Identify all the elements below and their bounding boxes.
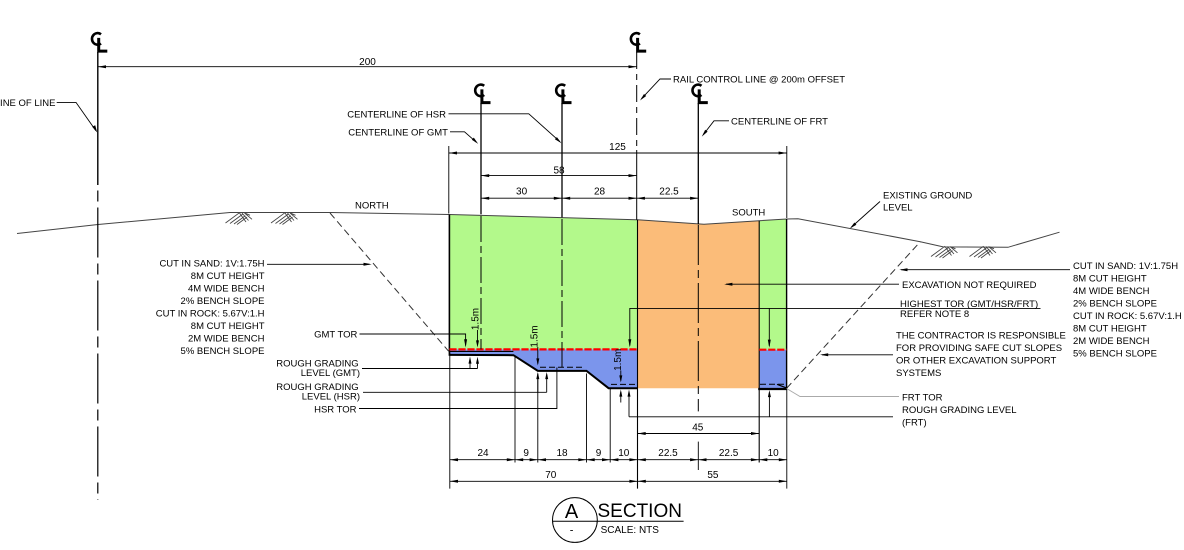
svg-text:LEVEL (GMT): LEVEL (GMT): [301, 368, 360, 379]
svg-text:70: 70: [545, 470, 557, 481]
svg-text:CUT IN SAND: 1V:1.75H: CUT IN SAND: 1V:1.75H: [1073, 261, 1178, 272]
svg-text:8M CUT HEIGHT: 8M CUT HEIGHT: [191, 321, 265, 332]
svg-text:HSR TOR: HSR TOR: [314, 405, 357, 416]
svg-text:30: 30: [516, 187, 528, 198]
svg-text:8M CUT HEIGHT: 8M CUT HEIGHT: [1073, 274, 1147, 285]
svg-text:9: 9: [523, 448, 529, 459]
svg-text:24: 24: [477, 448, 489, 459]
svg-text:RAIL CONTROL LINE @ 200m OFFSE: RAIL CONTROL LINE @ 200m OFFSET: [673, 75, 845, 86]
svg-text:22.5: 22.5: [658, 448, 678, 459]
svg-text:CENTERLINE OF HSR: CENTERLINE OF HSR: [347, 110, 446, 121]
svg-text:18: 18: [556, 448, 568, 459]
svg-text:SOUTH: SOUTH: [732, 208, 765, 219]
svg-text:CENTERLINE OF LINE: CENTERLINE OF LINE: [0, 98, 56, 109]
svg-text:5% BENCH SLOPE: 5% BENCH SLOPE: [181, 346, 265, 357]
svg-text:22.5: 22.5: [719, 448, 739, 459]
svg-text:5% BENCH SLOPE: 5% BENCH SLOPE: [1073, 349, 1157, 360]
svg-text:EXCAVATION NOT REQUIRED: EXCAVATION NOT REQUIRED: [902, 280, 1037, 291]
svg-text:CUT IN ROCK: 5.67V:1.H: CUT IN ROCK: 5.67V:1.H: [1073, 311, 1182, 322]
svg-text:9: 9: [596, 448, 602, 459]
svg-text:125: 125: [609, 142, 626, 153]
svg-text:1.5m: 1.5m: [613, 349, 624, 371]
svg-text:OR OTHER EXCAVATION SUPPORT: OR OTHER EXCAVATION SUPPORT: [896, 356, 1056, 367]
svg-text:CENTERLINE OF GMT: CENTERLINE OF GMT: [348, 128, 448, 139]
svg-text:8M CUT HEIGHT: 8M CUT HEIGHT: [1073, 324, 1147, 335]
svg-text:GMT TOR: GMT TOR: [314, 330, 357, 341]
svg-text:55: 55: [707, 470, 719, 481]
svg-text:8M CUT HEIGHT: 8M CUT HEIGHT: [191, 271, 265, 282]
svg-text:200: 200: [359, 57, 376, 68]
svg-text:4M WIDE BENCH: 4M WIDE BENCH: [1073, 286, 1150, 297]
svg-text:EXISTING GROUND: EXISTING GROUND: [883, 191, 972, 202]
svg-text:THE CONTRACTOR IS RESPONSIBLE: THE CONTRACTOR IS RESPONSIBLE: [896, 331, 1066, 342]
svg-text:2% BENCH SLOPE: 2% BENCH SLOPE: [1073, 299, 1157, 310]
svg-text:SCALE: NTS: SCALE: NTS: [601, 525, 660, 536]
svg-text:REFER NOTE 8: REFER NOTE 8: [900, 309, 969, 320]
svg-text:A: A: [565, 501, 579, 523]
svg-text:CENTERLINE OF FRT: CENTERLINE OF FRT: [731, 117, 828, 128]
svg-text:NORTH: NORTH: [355, 201, 389, 212]
svg-text:1.5m: 1.5m: [530, 325, 541, 347]
svg-text:45: 45: [692, 423, 704, 434]
svg-text:-: -: [570, 525, 574, 537]
svg-text:4M WIDE BENCH: 4M WIDE BENCH: [188, 284, 265, 295]
svg-text:58: 58: [553, 165, 565, 176]
svg-text:22.5: 22.5: [659, 187, 679, 198]
svg-text:FRT TOR: FRT TOR: [902, 393, 943, 404]
svg-text:SECTION: SECTION: [598, 501, 682, 522]
svg-text:CUT IN SAND: 1V:1.75H: CUT IN SAND: 1V:1.75H: [159, 259, 264, 270]
svg-text:ROUGH GRADING LEVEL: ROUGH GRADING LEVEL: [902, 405, 1017, 416]
svg-text:2M WIDE BENCH: 2M WIDE BENCH: [188, 334, 265, 345]
svg-text:(FRT): (FRT): [902, 418, 927, 429]
svg-text:10: 10: [768, 448, 780, 459]
svg-text:LEVEL (HSR): LEVEL (HSR): [302, 391, 360, 402]
svg-text:10: 10: [618, 448, 630, 459]
svg-text:FOR PROVIDING SAFE CUT SLOPES: FOR PROVIDING SAFE CUT SLOPES: [896, 343, 1062, 354]
svg-text:1.5m: 1.5m: [471, 308, 482, 330]
svg-text:CUT IN ROCK: 5.67V:1.H: CUT IN ROCK: 5.67V:1.H: [156, 309, 265, 320]
svg-text:28: 28: [594, 187, 606, 198]
svg-text:SYSTEMS: SYSTEMS: [896, 368, 941, 379]
svg-text:2M WIDE BENCH: 2M WIDE BENCH: [1073, 336, 1150, 347]
svg-text:LEVEL: LEVEL: [883, 203, 913, 214]
svg-text:2% BENCH SLOPE: 2% BENCH SLOPE: [181, 296, 265, 307]
